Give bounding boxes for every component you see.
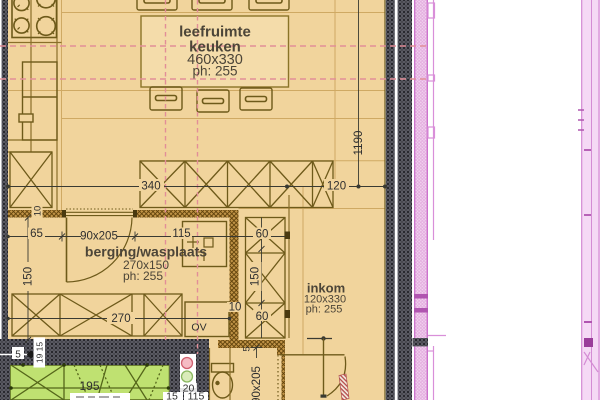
- svg-text:150: 150: [23, 267, 35, 286]
- svg-text:150: 150: [250, 267, 262, 286]
- svg-text:19 15: 19 15: [35, 342, 45, 364]
- svg-text:5: 5: [242, 346, 253, 351]
- svg-text:ph: 255: ph: 255: [192, 64, 237, 79]
- svg-text:115: 115: [172, 228, 190, 240]
- svg-text:120: 120: [327, 181, 346, 193]
- svg-text:195: 195: [79, 379, 99, 393]
- svg-text:60: 60: [256, 229, 269, 241]
- svg-text:90x205: 90x205: [251, 366, 263, 400]
- svg-text:60: 60: [256, 311, 269, 323]
- svg-text:65: 65: [30, 228, 43, 240]
- svg-text:ph: 255: ph: 255: [123, 269, 163, 283]
- svg-text:1190: 1190: [353, 131, 365, 156]
- svg-text:340: 340: [141, 181, 160, 193]
- svg-text:15: 15: [166, 391, 178, 400]
- svg-text:270: 270: [111, 313, 130, 325]
- svg-text:10: 10: [229, 302, 242, 314]
- svg-text:OV: OV: [191, 322, 206, 334]
- svg-text:ph: 255: ph: 255: [306, 304, 343, 316]
- svg-text:10: 10: [33, 206, 44, 217]
- svg-text:90x205: 90x205: [80, 231, 118, 243]
- svg-text:5: 5: [15, 350, 21, 361]
- svg-text:115: 115: [188, 391, 205, 400]
